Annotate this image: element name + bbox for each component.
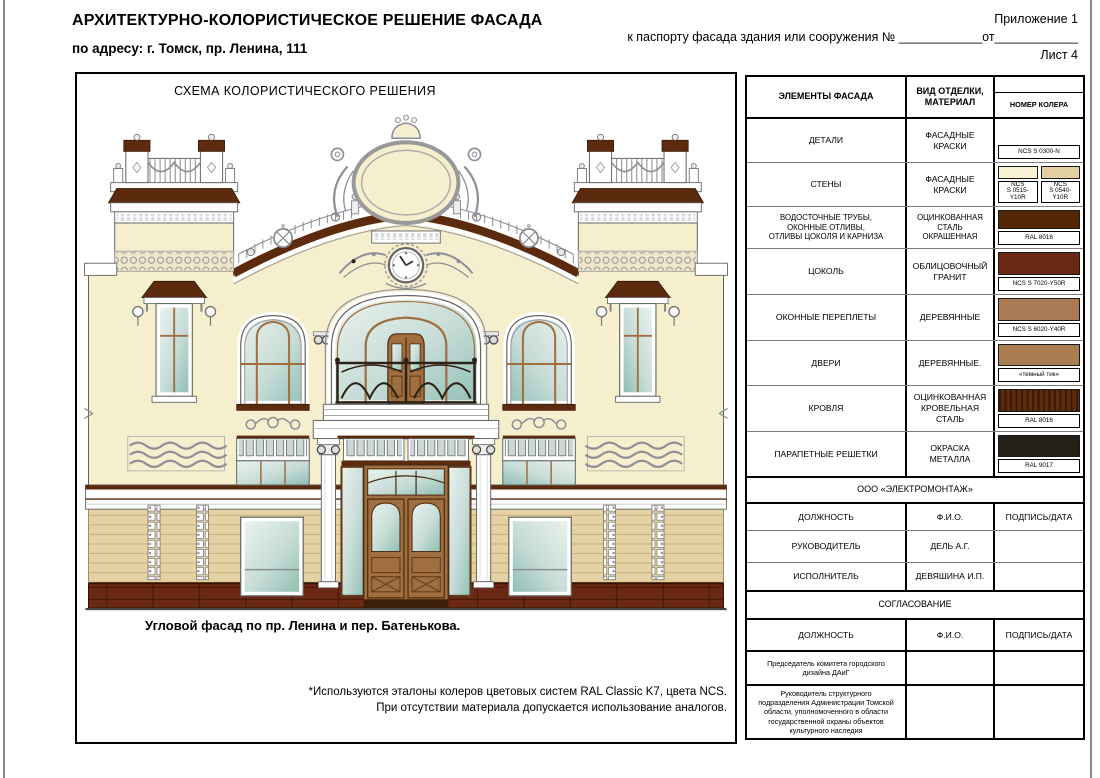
entrance	[341, 461, 470, 608]
appendix-label: Приложение 1	[598, 10, 1078, 28]
color-swatch	[998, 210, 1080, 229]
footnote: *Используются эталоны колеров цветовых с…	[309, 684, 727, 716]
person-name: ДЕЛЬ А.Г.	[905, 531, 993, 562]
table-row: ЦОКОЛЬ ОБЛИЦОВОЧНЫЙ ГРАНИТ NCS S 7020-Y5…	[747, 248, 1083, 294]
color-table: ЭЛЕМЕНТЫ ФАСАДА ВИД ОТДЕЛКИ, МАТЕРИАЛ НО…	[745, 75, 1085, 740]
facade-element: ДЕТАЛИ	[747, 119, 905, 162]
finish-type: ДЕРЕВЯННЫЕ.	[905, 341, 993, 385]
finish-type: ОЦИНКОВАННАЯ КРОВЕЛЬНАЯ СТАЛЬ	[905, 386, 993, 431]
address-line: по адресу: г. Томск, пр. Ленина, 111	[72, 41, 543, 56]
color-code: NCS S 6020-Y40R	[998, 323, 1080, 337]
table-row: ОКОННЫЕ ПЕРЕПЛЕТЫ ДЕРЕВЯННЫЕ NCS S 6020-…	[747, 294, 1083, 340]
passport-sheet: { "page": { "title": "АРХИТЕКТУРНО-КОЛОР…	[0, 0, 1100, 778]
facade-element: СТЕНЫ	[747, 163, 905, 206]
signature-cell	[993, 652, 1083, 684]
facade-element: ДВЕРИ	[747, 341, 905, 385]
oval-cartouche	[354, 142, 459, 223]
color-swatch	[998, 298, 1080, 321]
finish-type: ОЦИНКОВАННАЯ СТАЛЬ ОКРАШЕННАЯ	[905, 207, 993, 248]
approval-row: Руководитель структурного подразделения …	[747, 684, 1083, 738]
facade-element: КРОВЛЯ	[747, 386, 905, 431]
staff-row: РУКОВОДИТЕЛЬ ДЕЛЬ А.Г.	[747, 530, 1083, 562]
color-code: NCS S 7020-Y50R	[998, 277, 1080, 291]
crown-ornament	[392, 123, 420, 138]
approval-header-row: ДОЛЖНОСТЬ Ф.И.О. ПОДПИСЬ/ДАТА	[747, 618, 1083, 650]
facade-element: ПАРАПЕТНЫЕ РЕШЕТКИ	[747, 432, 905, 476]
finish-type: ДЕРЕВЯННЫЕ	[905, 295, 993, 340]
table-row: КРОВЛЯ ОЦИНКОВАННАЯ КРОВЕЛЬНАЯ СТАЛЬ RAL…	[747, 385, 1083, 431]
approval-title-row: СОГЛАСОВАНИЕ	[747, 590, 1083, 618]
color-code: RAL 8016	[998, 414, 1080, 428]
color-swatch	[998, 252, 1080, 275]
approval-row: Председатель комитета городского дизайна…	[747, 650, 1083, 684]
color-swatch	[998, 122, 1080, 143]
facade-element: ВОДОСТОЧНЫЕ ТРУБЫ, ОКОННЫЕ ОТЛИВЫ, ОТЛИВ…	[747, 207, 905, 248]
balcony-slab	[323, 404, 488, 420]
color-code: «темный тик»	[998, 368, 1080, 382]
position: ИСПОЛНИТЕЛЬ	[747, 563, 905, 590]
table-row: СТЕНЫ ФАСАДНЫЕ КРАСКИ NCS S 0515-Y10R NC…	[747, 162, 1083, 206]
finish-type: ОБЛИЦОВОЧНЫЙ ГРАНИТ	[905, 249, 993, 294]
color-code: NCS S 0540-Y10R	[1041, 181, 1081, 203]
facade-element: ЦОКОЛЬ	[747, 249, 905, 294]
footnote-line1: *Используются эталоны колеров цветовых с…	[309, 684, 727, 700]
table-header-row: ЭЛЕМЕНТЫ ФАСАДА ВИД ОТДЕЛКИ, МАТЕРИАЛ НО…	[747, 77, 1083, 117]
table-row: ДВЕРИ ДЕРЕВЯННЫЕ. «темный тик»	[747, 340, 1083, 385]
person-name	[905, 652, 993, 684]
color-code: RAL 8016	[998, 231, 1080, 245]
header-finish: ВИД ОТДЕЛКИ, МАТЕРИАЛ	[905, 77, 993, 117]
table-row: ПАРАПЕТНЫЕ РЕШЕТКИ ОКРАСКА МЕТАЛЛА RAL 9…	[747, 431, 1083, 476]
approval-title: СОГЛАСОВАНИЕ	[747, 592, 1083, 618]
color-code: NCS S 0300-N	[998, 145, 1080, 159]
table-row: ВОДОСТОЧНЫЕ ТРУБЫ, ОКОННЫЕ ОТЛИВЫ, ОТЛИВ…	[747, 206, 1083, 248]
header-color-number: НОМЕР КОЛЕРА	[993, 77, 1083, 117]
staff-header-row: ДОЛЖНОСТЬ Ф.И.О. ПОДПИСЬ/ДАТА	[747, 502, 1083, 530]
facade-element: ОКОННЫЕ ПЕРЕПЛЕТЫ	[747, 295, 905, 340]
position: Председатель комитета городского дизайна…	[747, 652, 905, 684]
color-swatch	[998, 166, 1038, 179]
color-swatch-striped	[998, 389, 1080, 412]
page-edge-line-right	[1090, 0, 1092, 778]
color-swatch	[998, 435, 1080, 457]
page-title: АРХИТЕКТУРНО-КОЛОРИСТИЧЕСКОЕ РЕШЕНИЕ ФАС…	[72, 12, 543, 30]
signature-cell	[993, 563, 1083, 590]
finish-type: ОКРАСКА МЕТАЛЛА	[905, 432, 993, 476]
color-code: RAL 9017	[998, 459, 1080, 473]
finish-type: ФАСАДНЫЕ КРАСКИ	[905, 163, 993, 206]
color-code: NCS S 0515-Y10R	[998, 181, 1038, 203]
drawing-caption: Угловой фасад по пр. Ленина и пер. Батен…	[145, 618, 460, 633]
org-name: ООО «ЭЛЕКТРОМОНТАЖ»	[747, 478, 1083, 502]
signature-cell	[993, 531, 1083, 562]
person-name	[905, 686, 993, 738]
position: Руководитель структурного подразделения …	[747, 686, 905, 738]
footnote-line2: При отсутствии материала допускается исп…	[309, 700, 727, 716]
drawing-frame: СХЕМА КОЛОРИСТИЧЕСКОГО РЕШЕНИЯ	[75, 72, 737, 744]
page-edge-line-left	[3, 0, 5, 778]
staff-row: ИСПОЛНИТЕЛЬ ДЕВЯШИНА И.П.	[747, 562, 1083, 590]
header-elements: ЭЛЕМЕНТЫ ФАСАДА	[747, 77, 905, 117]
person-name: ДЕВЯШИНА И.П.	[905, 563, 993, 590]
position: РУКОВОДИТЕЛЬ	[747, 531, 905, 562]
org-row: ООО «ЭЛЕКТРОМОНТАЖ»	[747, 476, 1083, 502]
facade-drawing	[83, 104, 729, 616]
color-swatch	[998, 344, 1080, 366]
header-left: АРХИТЕКТУРНО-КОЛОРИСТИЧЕСКОЕ РЕШЕНИЕ ФАС…	[72, 12, 543, 56]
finish-type: ФАСАДНЫЕ КРАСКИ	[905, 119, 993, 162]
color-swatch	[1041, 166, 1081, 179]
signature-cell	[993, 686, 1083, 738]
passport-line: к паспорту фасада здания или сооружения …	[598, 28, 1078, 46]
header-color-blank	[995, 77, 1083, 93]
table-row: ДЕТАЛИ ФАСАДНЫЕ КРАСКИ NCS S 0300-N	[747, 117, 1083, 162]
sheet-number: Лист 4	[598, 46, 1078, 64]
drawing-title: СХЕМА КОЛОРИСТИЧЕСКОГО РЕШЕНИЯ	[77, 84, 533, 98]
header-right: Приложение 1 к паспорту фасада здания ил…	[598, 10, 1078, 64]
